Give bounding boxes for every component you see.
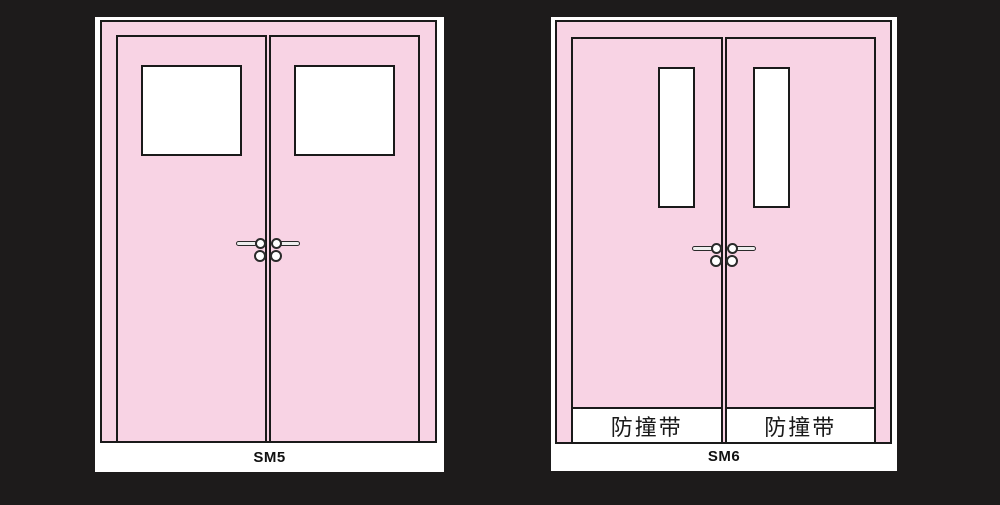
sm6-right-leaf: 防撞带 bbox=[725, 37, 877, 444]
handle-rose-icon bbox=[727, 243, 738, 254]
lever-handle-icon bbox=[236, 241, 257, 246]
lock-cylinder-icon bbox=[254, 250, 266, 262]
door-diagram-sm5: SM5 bbox=[95, 17, 444, 472]
sm6-right-vision-window bbox=[753, 67, 790, 208]
sm5-handle-set bbox=[213, 238, 323, 264]
bumper-strip-label: 防撞带 bbox=[764, 410, 836, 442]
sm5-door-leaves bbox=[116, 35, 420, 443]
sm6-door-leaves: 防撞带 防撞带 bbox=[571, 37, 876, 444]
door-diagram-sm6: 防撞带 防撞带 SM6 bbox=[551, 17, 897, 471]
handle-rose-icon bbox=[271, 238, 282, 249]
lever-handle-icon bbox=[279, 241, 300, 246]
bumper-strip-label: 防撞带 bbox=[611, 410, 683, 442]
sm6-model-label: SM6 bbox=[551, 442, 897, 471]
handle-rose-icon bbox=[711, 243, 722, 254]
sm6-handle-set bbox=[669, 243, 779, 269]
sm6-left-vision-window bbox=[658, 67, 695, 208]
lock-cylinder-icon bbox=[726, 255, 738, 267]
diagram-background: SM5 防撞带 防撞带 bbox=[0, 0, 1000, 505]
sm5-left-vision-window bbox=[141, 65, 242, 156]
lock-cylinder-icon bbox=[710, 255, 722, 267]
sm6-right-bumper-strip: 防撞带 bbox=[725, 407, 877, 444]
sm5-model-label: SM5 bbox=[95, 443, 444, 472]
lever-handle-icon bbox=[735, 246, 756, 251]
sm6-left-leaf: 防撞带 bbox=[571, 37, 723, 444]
sm5-right-vision-window bbox=[294, 65, 395, 156]
lever-handle-icon bbox=[692, 246, 713, 251]
sm6-left-bumper-strip: 防撞带 bbox=[571, 407, 723, 444]
lock-cylinder-icon bbox=[270, 250, 282, 262]
handle-rose-icon bbox=[255, 238, 266, 249]
